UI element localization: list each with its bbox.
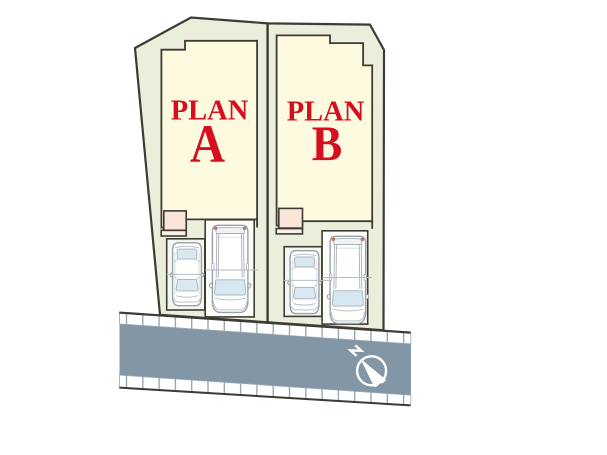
svg-text:A: A [190,114,225,174]
svg-text:B: B [312,115,343,171]
